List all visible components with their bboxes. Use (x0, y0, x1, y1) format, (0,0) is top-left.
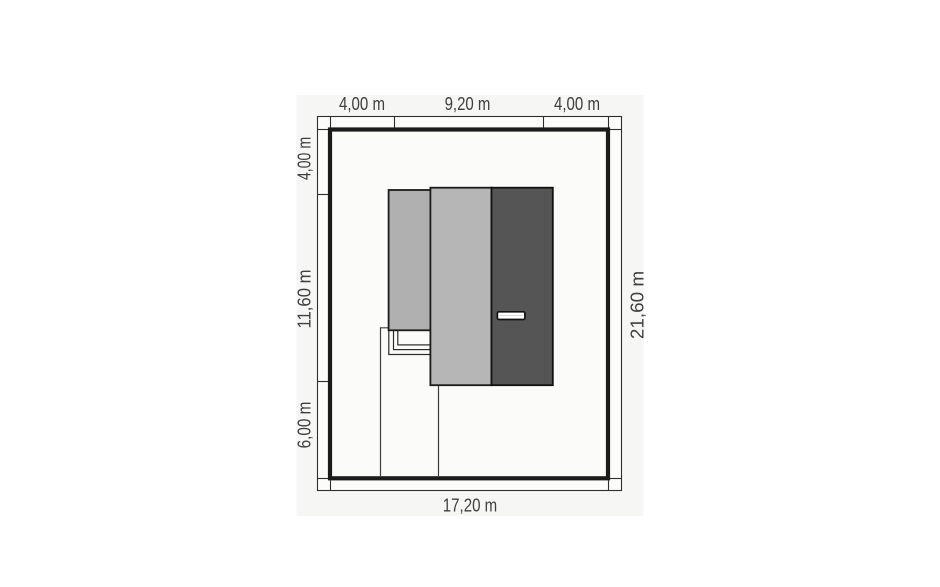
svg-text:6,00 m: 6,00 m (294, 402, 315, 449)
svg-text:11,60 m: 11,60 m (294, 270, 315, 329)
svg-text:4,00 m: 4,00 m (339, 93, 385, 114)
svg-text:4,00 m: 4,00 m (554, 93, 600, 114)
svg-text:21,60 m: 21,60 m (627, 271, 648, 339)
svg-text:9,20 m: 9,20 m (445, 93, 491, 114)
svg-text:4,00 m: 4,00 m (294, 137, 315, 180)
svg-text:17,20 m: 17,20 m (443, 495, 497, 516)
